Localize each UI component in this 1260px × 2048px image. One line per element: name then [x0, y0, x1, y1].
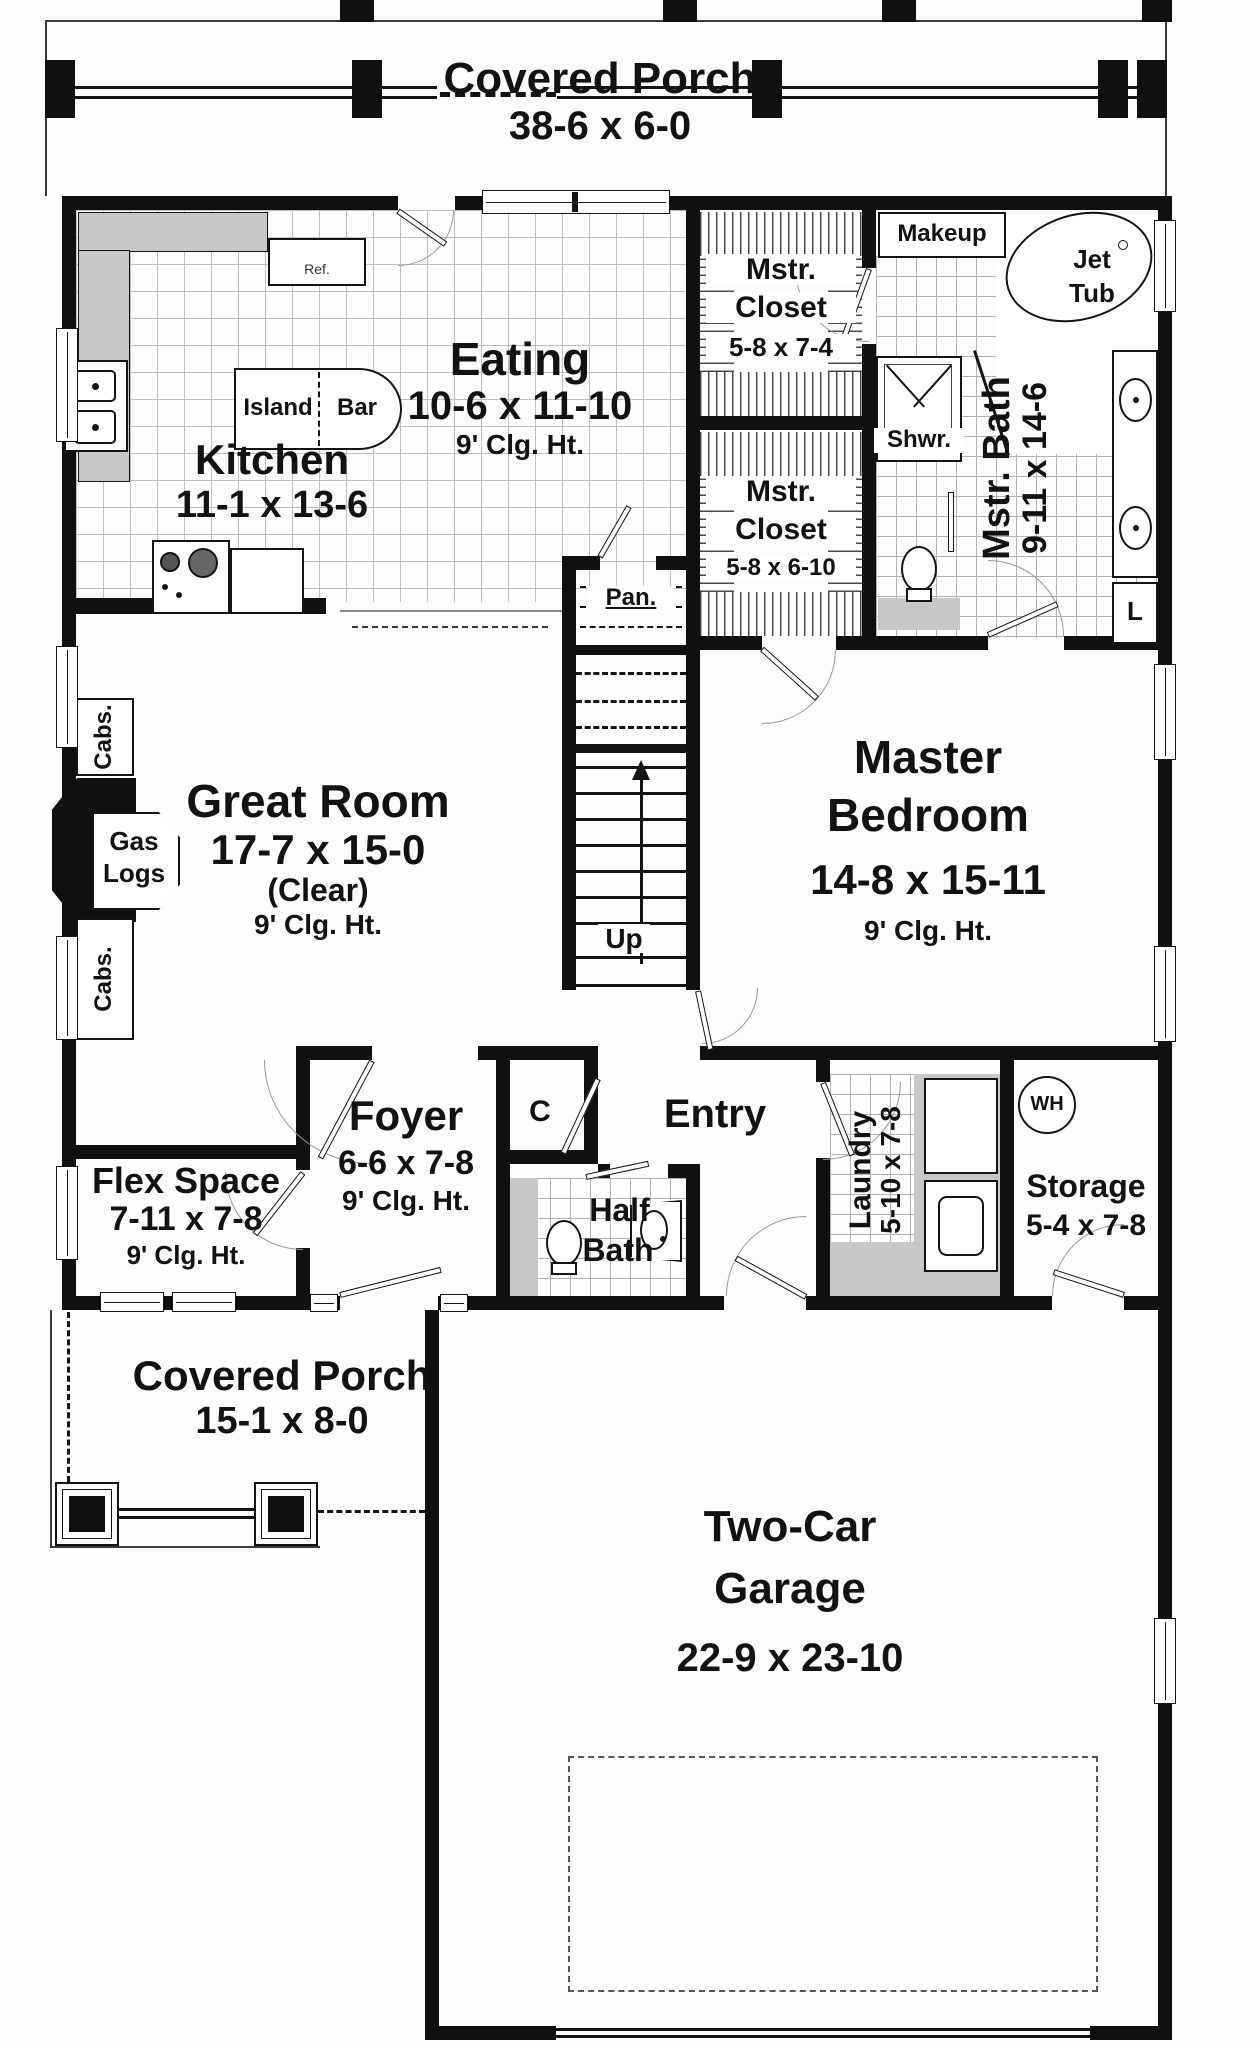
- closet1-hatch: [700, 372, 862, 416]
- range-stove: [152, 540, 230, 614]
- burner-dot-icon: [176, 592, 182, 598]
- wall-garage-bottom: [425, 2026, 556, 2040]
- stair-dashed-tread: [576, 726, 686, 729]
- wall-zone: [478, 1046, 598, 1060]
- stair-tread: [576, 844, 686, 847]
- washer-icon: [924, 1078, 998, 1174]
- master-bedroom-clg: 9' Clg. Ht.: [778, 916, 1078, 945]
- closet2-hatch: [700, 432, 862, 476]
- laundry-label-group: Laundry 5-10 x 7-8: [845, 1050, 915, 1290]
- jet-tub-line2: Tub: [1060, 280, 1124, 307]
- wall-closet1-right: [862, 196, 876, 268]
- wall-pantry-stairs: [576, 645, 700, 655]
- porch-column-icon: [352, 60, 382, 118]
- island-label: Island: [238, 396, 318, 421]
- great-room-note: (Clear): [118, 874, 518, 907]
- mstr-bath-name: Mstr. Bath: [978, 318, 1018, 618]
- wall-bath-bottom: [836, 636, 988, 650]
- wall-top: [665, 196, 1172, 210]
- flex-space-dims: 7-11 x 7-8: [66, 1202, 306, 1237]
- wall-halfbath-right: [686, 1164, 700, 1310]
- master-bedroom-line2: Bedroom: [778, 792, 1078, 840]
- eating-name: Eating: [370, 336, 670, 384]
- entry-label: Entry: [640, 1094, 790, 1136]
- roof-post-icon: [1142, 0, 1172, 22]
- floor-plan: Covered Porch 38-6 x 6-0 Ref. Island Bar…: [0, 0, 1260, 2048]
- flex-space-name: Flex Space: [66, 1162, 306, 1199]
- wall-bottom-zone: [806, 1296, 1052, 1310]
- wall-kitchen-bottom: [62, 598, 152, 614]
- mstr-closet1-line1: Mstr.: [706, 254, 856, 285]
- wall-top: [62, 196, 398, 210]
- stair-dashed-tread: [576, 672, 686, 675]
- flex-space-clg: 9' Clg. Ht.: [66, 1242, 306, 1269]
- stair-tread: [576, 956, 686, 959]
- kitchen-dims: 11-1 x 13-6: [122, 486, 422, 526]
- eating-dims: 10-6 x 11-10: [345, 386, 695, 428]
- mstr-closet1-dims: 5-8 x 7-4: [706, 334, 856, 361]
- window-mullion-icon: [572, 192, 578, 212]
- refrigerator-label: Ref.: [268, 262, 366, 277]
- island-bar-divider: [318, 372, 320, 446]
- front-door-leaf: [339, 1267, 441, 1298]
- wall-zone: [296, 1046, 372, 1060]
- porch-top-roof-edge: [45, 20, 1167, 22]
- window: [1154, 664, 1176, 760]
- roof-post-icon: [663, 0, 697, 22]
- linen-label: L: [1112, 598, 1158, 625]
- cabs-top-label-wrap: Cabs.: [92, 699, 118, 775]
- master-bedroom-dims: 14-8 x 15-11: [748, 858, 1108, 902]
- garage-line1: Two-Car: [640, 1504, 940, 1550]
- cased-opening-line: [340, 610, 562, 612]
- wall-laundry-left: [816, 1158, 830, 1310]
- porch-top-dims: 38-6 x 6-0: [380, 106, 820, 148]
- foyer-name: Foyer: [306, 1094, 506, 1138]
- wall-bottom-zone: [438, 1296, 724, 1310]
- great-room-name: Great Room: [118, 778, 518, 826]
- cabs-bottom-label-wrap: Cabs.: [92, 941, 118, 1017]
- door-leaf: [948, 492, 954, 552]
- porch-column-icon: [1098, 60, 1128, 118]
- window: [172, 1292, 236, 1312]
- half-bath-nook: [510, 1178, 538, 1296]
- wall-c-right: [584, 1060, 598, 1164]
- half-bath-line1: Half: [572, 1194, 667, 1227]
- porch-bottom-edge: [50, 1546, 320, 1548]
- porch-column-icon: [45, 60, 75, 118]
- faucet-icon: [92, 383, 99, 390]
- ceiling-break-dashed: [352, 626, 548, 628]
- window: [1154, 1618, 1176, 1704]
- mstr-bath-label-group: Mstr. Bath 9-11 x 14-6: [978, 318, 1058, 618]
- laundry-dims: 5-10 x 7-8: [876, 1050, 905, 1290]
- foyer-dims: 6-6 x 7-8: [306, 1146, 506, 1181]
- master-bedroom-line1: Master: [778, 734, 1078, 782]
- stair-dashed-tread: [576, 700, 686, 703]
- makeup-label: Makeup: [878, 222, 1006, 247]
- pantry-shelf-dashed: [580, 626, 682, 628]
- window: [440, 1294, 468, 1312]
- eating-clg: 9' Clg. Ht.: [395, 430, 645, 459]
- porch-roofline-dashed: [318, 1510, 425, 1513]
- stair-tread: [576, 766, 686, 769]
- wall-c-bottom: [510, 1150, 598, 1164]
- closet1-hatch: [700, 212, 862, 256]
- stair-tread: [576, 896, 686, 899]
- utility-tub-icon: [938, 1196, 984, 1256]
- drain-dot-icon: [1133, 397, 1139, 403]
- storage-name: Storage: [1010, 1170, 1162, 1203]
- window: [1154, 946, 1176, 1042]
- wc-floor-strip: [878, 598, 960, 630]
- stair-cut-line: [576, 744, 686, 753]
- porch-bottom-dashed-left: [67, 1312, 70, 1482]
- storage-dims: 5-4 x 7-8: [1010, 1210, 1162, 1241]
- garage-dashed-area: [568, 1756, 1098, 1992]
- wall-laundry-left: [816, 1060, 830, 1082]
- porch-bottom-name: Covered Porch: [82, 1354, 482, 1398]
- stairs-up-label: Up: [598, 924, 650, 953]
- window: [56, 646, 78, 748]
- pantry-label: Pan.: [588, 586, 674, 611]
- porch-bottom-dims: 15-1 x 8-0: [82, 1402, 482, 1442]
- wall-bath-bottom: [700, 636, 762, 650]
- foyer-clg: 9' Clg. Ht.: [306, 1186, 506, 1215]
- wall-stairs-left: [562, 556, 576, 990]
- porch-column-core-icon: [268, 1496, 304, 1532]
- kitchen-base-cabinet: [230, 548, 304, 614]
- window: [310, 1294, 338, 1312]
- half-bath-line2: Bath: [568, 1234, 668, 1267]
- cabs-bottom-label: Cabs.: [92, 941, 117, 1017]
- wall-zone: [700, 1046, 1172, 1060]
- kitchen-name: Kitchen: [122, 438, 422, 482]
- window: [100, 1292, 164, 1312]
- jet-tub-line1: Jet: [1062, 246, 1122, 273]
- porch-railing-line: [119, 1516, 254, 1519]
- great-room-dims: 17-7 x 15-0: [118, 828, 518, 872]
- burner-icon: [188, 548, 218, 578]
- wall-closet1-left: [686, 196, 700, 990]
- stair-tread: [576, 818, 686, 821]
- mstr-closet2-line1: Mstr.: [706, 476, 856, 507]
- wall-closet-divider: [700, 416, 876, 430]
- cabs-top-label: Cabs.: [92, 699, 117, 775]
- garage-door-line: [556, 2035, 1090, 2038]
- window: [1154, 220, 1176, 312]
- wall-garage-bottom: [1090, 2026, 1172, 2040]
- porch-column-icon: [1137, 60, 1167, 118]
- mstr-bath-dims: 9-11 x 14-6: [1018, 318, 1053, 618]
- garage-line2: Garage: [640, 1566, 940, 1612]
- laundry-name: Laundry: [845, 1050, 876, 1290]
- window: [56, 328, 78, 442]
- closet-c-label: C: [518, 1096, 562, 1127]
- shower-label: Shwr.: [874, 428, 964, 453]
- wall-bottom-zone: [1124, 1296, 1172, 1310]
- wall-kitchen-stub: [304, 598, 326, 614]
- gas-logs-line2: Logs: [92, 860, 176, 887]
- closet2-hatch: [700, 592, 862, 636]
- garage-dims: 22-9 x 23-10: [615, 1638, 965, 1680]
- wall-pantry-top: [562, 556, 600, 570]
- toilet-icon: [901, 546, 937, 592]
- wall-right: [1158, 196, 1172, 2040]
- garage-door-line: [556, 2028, 1090, 2031]
- wall-pantry-top: [656, 556, 700, 570]
- faucet-icon: [92, 424, 99, 431]
- wall-closet1-right: [862, 344, 876, 650]
- porch-bottom-left-line: [50, 1310, 52, 1548]
- toilet-tank-icon: [906, 588, 932, 602]
- burner-icon: [160, 552, 180, 572]
- burner-dot-icon: [162, 584, 168, 590]
- water-heater-label: WH: [1018, 1094, 1076, 1115]
- porch-column-core-icon: [69, 1496, 105, 1532]
- stair-arrow-head-icon: [632, 760, 650, 780]
- gas-logs-line1: Gas: [92, 828, 176, 855]
- mstr-closet2-dims: 5-8 x 6-10: [706, 556, 856, 581]
- stair-tread: [576, 870, 686, 873]
- kitchen-counter-top: [78, 212, 268, 252]
- stair-bottom-line: [576, 984, 686, 987]
- roof-post-icon: [340, 0, 374, 22]
- mstr-closet1-line2: Closet: [706, 292, 856, 323]
- roof-post-icon: [882, 0, 916, 22]
- stair-tread: [576, 792, 686, 795]
- drain-dot-icon: [1133, 525, 1139, 531]
- porch-railing-line: [119, 1508, 254, 1511]
- porch-top-name: Covered Porch: [380, 56, 820, 102]
- mstr-closet2-line2: Closet: [706, 514, 856, 545]
- wall-flex-top: [62, 1145, 310, 1159]
- great-room-clg: 9' Clg. Ht.: [118, 910, 518, 939]
- window: [56, 936, 78, 1040]
